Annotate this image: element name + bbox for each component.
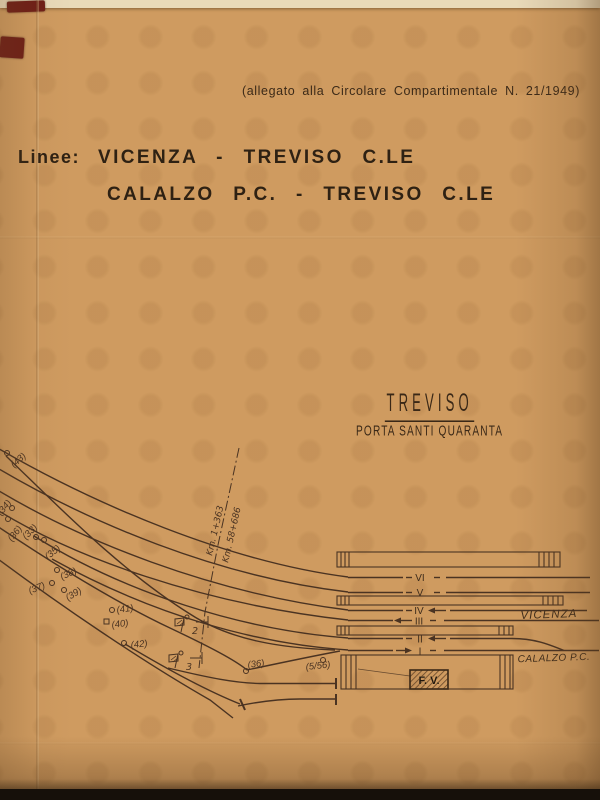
- destination-vicenza: VICENZA: [520, 608, 577, 622]
- switch-labels: (43) (34) (36) (33) (35) (38) (37) (39) …: [0, 451, 331, 673]
- track-label-v: V: [417, 588, 424, 599]
- switch-36-scalo: (36): [247, 658, 265, 671]
- switch-40: (40): [111, 618, 129, 631]
- station-building: F. V.: [410, 670, 448, 689]
- switch-41: (41): [116, 603, 134, 616]
- track-label-i: I: [419, 647, 422, 658]
- photo-bottom-edge: [0, 789, 600, 800]
- signal-3-label: 3: [186, 662, 192, 673]
- scanned-page: (allegato alla Circolare Compartimentale…: [0, 0, 600, 800]
- destination-calalzo: CALALZO P.C.: [517, 652, 590, 666]
- track-label-vi: VI: [415, 573, 424, 584]
- track-label-ii: II: [417, 635, 423, 646]
- signal-2-label: 2: [192, 626, 198, 637]
- yard-curves: [0, 446, 348, 718]
- switch-39: (39): [64, 585, 84, 603]
- building-label: F. V.: [419, 675, 440, 687]
- switch-42: (42): [130, 638, 148, 651]
- page-bottom-shadow: [0, 779, 600, 789]
- track-numbers: VI V IV III II I: [414, 573, 424, 658]
- switch-5-56: (5/56): [305, 659, 331, 673]
- switch-34: (34): [0, 498, 14, 518]
- switch-35: (35): [43, 543, 63, 562]
- track-diagram: VI V IV III II I F. V.: [0, 0, 600, 800]
- switch-43: (43): [9, 451, 29, 470]
- track-label-iv: IV: [414, 606, 424, 617]
- destination-labels: VICENZA CALALZO P.C.: [517, 608, 590, 665]
